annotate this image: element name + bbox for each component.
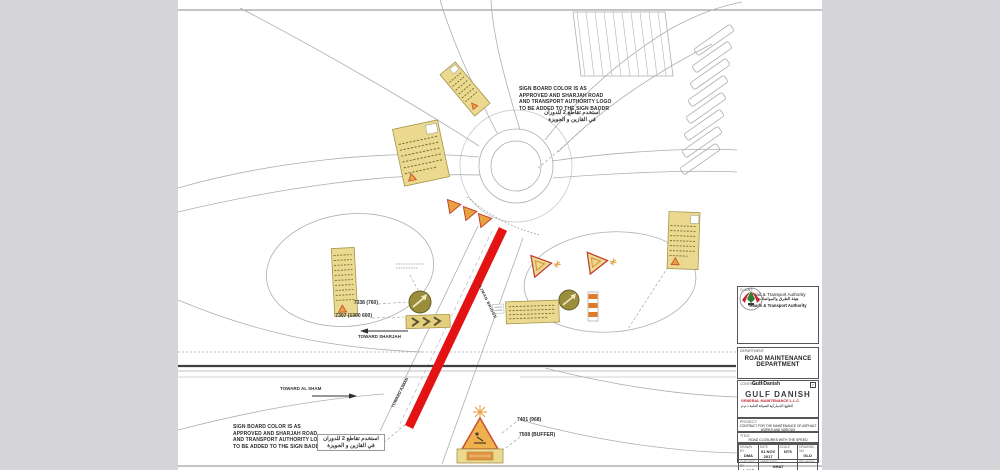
authority-en-bold: Roads & Transport Authority [738, 303, 818, 308]
drawing-canvas: SIGN BOARD COLOR IS AS APPROVED AND SHAR… [0, 0, 1000, 470]
title-block-project: PROJECT: CONTRACT FOR THE MAINTENANCE OF… [737, 418, 819, 432]
drawing-sheet [178, 0, 822, 470]
title-block-contractor: CONTRACTOR: Gulf Danish ✓ GULF DANISH GE… [737, 380, 819, 418]
revision-table: DRAWN BYDMA DATE01 NOV 2017 SCALENTS DRA… [738, 444, 818, 470]
contractor-name: Gulf Danish [752, 381, 780, 387]
company-name: GULF DANISH [738, 390, 818, 399]
department-line2: DEPARTMENT [738, 362, 818, 368]
client-label: CLIENT: [740, 288, 753, 292]
title-block-title: TITLE: ROAD CLOSURES WITH THE SPEED REDU… [737, 432, 819, 443]
project-line1: CONTRACT FOR THE MAINTENANCE OF ASPHALT … [738, 424, 818, 432]
sign-code-7307: 7307 (1300 600) [330, 313, 372, 319]
checkbox-icon: ✓ [810, 382, 816, 388]
title-block-client: CLIENT: Road & Transport Authority هيئة … [737, 286, 819, 344]
sign-code-7401: 7401 (968) [517, 417, 541, 423]
sign-code-7338: 7338 (760) [348, 300, 378, 306]
arabic-note-bottom: استخدم تقاطع 2 للدوران في القازين و الجو… [317, 434, 385, 451]
department-label: DEPARTMENT: [740, 349, 764, 353]
sign-board-note-top: SIGN BOARD COLOR IS AS APPROVED AND SHAR… [519, 86, 612, 112]
title-block-department: DEPARTMENT: ROAD MAINTENANCE DEPARTMENT [737, 347, 819, 379]
arabic-note-top: استخدم تقاطع 2 للدوران في القازين و الجو… [540, 110, 604, 123]
sign-board-note-bottom: SIGN BOARD COLOR IS AS APPROVED AND SHAR… [233, 424, 326, 450]
title-label: TITLE: [740, 434, 751, 438]
project-label: PROJECT: [740, 420, 757, 424]
title-block-table: DRAWN BYDMA DATE01 NOV 2017 SCALENTS DRA… [737, 443, 819, 463]
toward-al-sham-label: TOWARD AL SHAM [280, 386, 321, 391]
company-arabic: الخليج الدنماركية للصيانة العامة ذ.م.م [741, 403, 818, 410]
sign-code-7508: 7508 (BUFFER) [519, 432, 555, 438]
toward-sharjah-label: TOWARD SHARJAH [358, 334, 401, 339]
